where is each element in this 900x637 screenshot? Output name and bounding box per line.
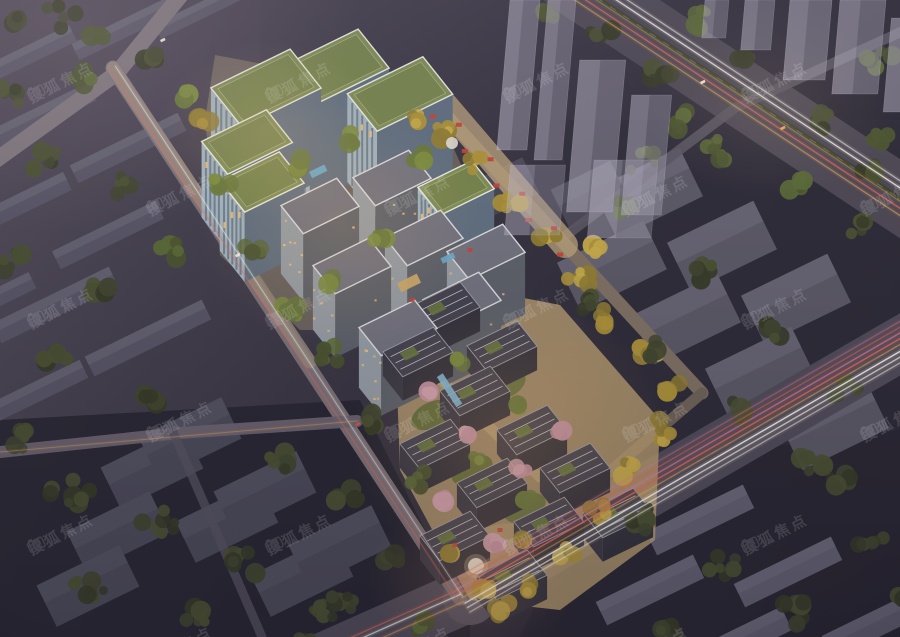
tree [67, 5, 83, 21]
tree [41, 2, 53, 14]
shop-awning [430, 115, 436, 119]
tree [769, 333, 780, 344]
lit-window [391, 278, 393, 280]
tree [245, 563, 266, 584]
tree [99, 278, 118, 297]
tree [434, 492, 454, 512]
tree [133, 513, 151, 531]
tree [424, 387, 437, 400]
tree [345, 603, 356, 614]
tree [64, 498, 73, 507]
tree [702, 562, 717, 577]
tree [734, 49, 754, 69]
lit-window [313, 289, 315, 291]
tree-cluster [153, 235, 186, 268]
tree [74, 492, 89, 507]
lit-window [289, 241, 291, 243]
tree-cluster [135, 385, 167, 414]
tree [474, 455, 484, 465]
tree [268, 456, 280, 468]
lit-window [373, 398, 375, 400]
tree [54, 21, 68, 35]
tree [880, 127, 896, 143]
lit-window [331, 314, 333, 316]
tree [595, 316, 613, 334]
lit-window [490, 323, 492, 325]
tree [13, 98, 24, 109]
lit-window [393, 204, 395, 206]
shop-awning [557, 253, 563, 257]
tree [279, 463, 290, 474]
tree [209, 173, 221, 185]
ghost-tower [504, 165, 565, 235]
lit-window [301, 254, 303, 256]
tree [705, 260, 717, 272]
tree [647, 74, 661, 88]
slab-roof-highlight [52, 201, 159, 259]
tree [656, 626, 666, 636]
tree [197, 118, 208, 129]
lit-window [205, 162, 207, 168]
tree [575, 267, 584, 276]
tree [326, 491, 346, 511]
tree [338, 133, 359, 154]
tree [291, 149, 312, 170]
tree [241, 546, 255, 560]
rendering-canvas: 搜狐焦点搜狐焦点搜狐焦点搜狐焦点搜狐焦点搜狐焦点搜狐焦点搜狐焦点搜狐焦点搜狐焦点… [0, 0, 900, 637]
tree [626, 458, 640, 472]
lit-window [352, 227, 354, 229]
tree [318, 274, 339, 295]
lit-window [450, 273, 452, 275]
shop-awning [462, 149, 468, 153]
tree [715, 563, 725, 573]
lit-window [379, 362, 381, 364]
tree [120, 176, 130, 186]
tree [52, 0, 66, 13]
tree [725, 561, 742, 578]
tree [95, 26, 106, 37]
lit-window [361, 124, 363, 130]
shop-awning [453, 543, 458, 547]
tree [411, 118, 421, 128]
tree [313, 599, 326, 612]
residential-slab-west [85, 300, 211, 377]
north-plaza-feature [446, 137, 458, 149]
lit-window [327, 330, 329, 332]
tree [552, 421, 572, 441]
ghost-tower [741, 0, 775, 50]
tree [865, 536, 878, 549]
tree [710, 150, 728, 168]
ghost-tower [832, 0, 886, 94]
tree [179, 85, 192, 98]
tree [467, 165, 477, 175]
tree [668, 119, 688, 139]
tree [475, 151, 488, 164]
tree [794, 171, 813, 190]
shop-awning [494, 184, 500, 188]
tree [866, 133, 880, 147]
tree [330, 354, 345, 369]
tree [515, 399, 525, 409]
tree [158, 505, 170, 517]
lit-window [374, 380, 376, 382]
tree [32, 142, 51, 161]
aerial-scene [0, 0, 900, 637]
ghost-tower [883, 18, 900, 112]
ghost-tower-face [883, 18, 900, 112]
tree [12, 11, 23, 22]
tree [172, 245, 183, 256]
tree [491, 601, 510, 620]
tree [168, 524, 179, 535]
tree [664, 427, 677, 440]
lit-window [231, 212, 233, 218]
tree [84, 72, 98, 86]
tree [314, 352, 328, 366]
residential-slab-west [52, 201, 164, 269]
tree [846, 228, 857, 239]
ghost-tower [497, 0, 540, 150]
lit-window [289, 264, 291, 266]
tree [561, 272, 575, 286]
tree [244, 244, 261, 261]
tree [813, 455, 834, 476]
lit-window [377, 398, 379, 400]
tree [9, 83, 21, 95]
lit-window [313, 317, 315, 319]
tree [144, 389, 158, 403]
tree [462, 427, 477, 442]
lit-window [238, 212, 240, 218]
lit-window [298, 271, 300, 273]
lit-window [374, 299, 376, 301]
tree [191, 601, 211, 621]
tree [710, 549, 725, 564]
lit-window [428, 207, 430, 213]
tree [508, 459, 525, 476]
lit-window [283, 244, 285, 246]
ghost-tower [702, 0, 729, 38]
tree [826, 475, 847, 496]
tree [788, 615, 805, 632]
tree [811, 104, 830, 123]
tree [342, 592, 352, 602]
tree [25, 160, 43, 178]
tree [58, 12, 69, 23]
lit-window [364, 349, 366, 351]
shop-awning [498, 528, 503, 532]
tree [657, 382, 676, 401]
lit-window [285, 220, 287, 222]
tree [99, 586, 108, 595]
lit-window [373, 355, 375, 357]
tree [650, 411, 669, 430]
tree [68, 578, 81, 591]
tree [522, 494, 531, 503]
tree [596, 302, 611, 317]
tree [642, 349, 657, 364]
tree [775, 595, 793, 613]
ghost-tower [783, 0, 832, 80]
tree [367, 233, 381, 247]
tree [689, 261, 704, 276]
shop-awning [456, 123, 462, 127]
tree [405, 477, 417, 489]
shop-awning [410, 298, 415, 302]
tree [638, 523, 652, 537]
tree [522, 587, 532, 597]
tree [42, 485, 59, 502]
tree [791, 448, 812, 469]
tree [78, 586, 97, 605]
tree [228, 556, 239, 567]
tree [440, 544, 458, 562]
lit-window [502, 293, 504, 295]
shop-awning [468, 248, 473, 252]
tree [856, 216, 869, 229]
tree [47, 344, 67, 364]
tree [361, 415, 373, 427]
tree [286, 297, 307, 318]
tree [14, 255, 24, 265]
tree [326, 590, 339, 603]
tree [850, 536, 867, 553]
tree [327, 612, 337, 622]
lit-window [402, 213, 404, 215]
tree [450, 351, 464, 365]
tree [147, 46, 164, 63]
lit-window [320, 302, 322, 304]
tree [585, 299, 597, 311]
tree [418, 157, 429, 168]
tree [385, 544, 405, 564]
shop-awning [488, 157, 494, 161]
slab-roof-highlight [85, 300, 206, 365]
tree [180, 613, 194, 627]
tree [712, 134, 723, 145]
lit-window [294, 242, 296, 244]
tree [589, 247, 601, 259]
tree [648, 335, 662, 349]
tree [795, 594, 811, 610]
lit-window [223, 222, 225, 228]
lit-window [414, 213, 416, 215]
tree-cluster [419, 381, 439, 401]
ghost-tower [587, 160, 658, 238]
lit-window [362, 364, 364, 366]
tree [153, 240, 168, 255]
lit-window [370, 131, 372, 137]
tree-cluster [110, 171, 138, 201]
tree [353, 492, 365, 504]
tree [66, 473, 81, 488]
